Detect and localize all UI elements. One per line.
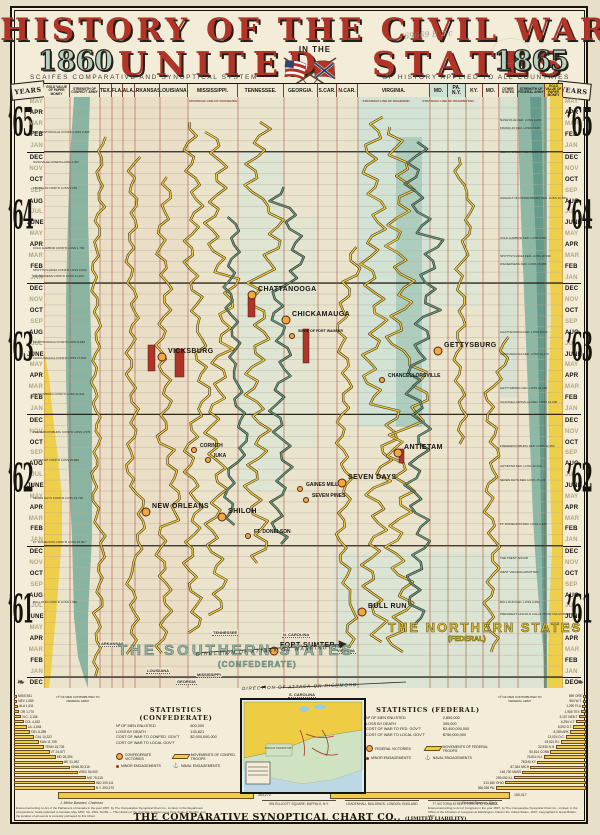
stair-label: OR 1,770 [20,710,34,714]
confederate-annotation: FT. DONELSON CONF’D LOSS 15,067 [33,540,86,544]
battle-label: SEVEN PINES [312,493,345,499]
year-block: ’64 [569,152,590,283]
legend-item: FEDERAL VICTORIES [366,745,421,752]
stair-bar [583,695,586,699]
flourish-icon: ❧ [17,678,24,688]
statistic-value: $750,000,000 [443,733,466,739]
chairman-signature: J. Mellor Barward, Chairman [60,801,103,805]
federal-annotation: BULL RUN FED. LOSS 2,952 [500,600,540,604]
month-label: JUL [27,603,45,609]
stair-bar [14,750,50,754]
secession-label: S. CAROLINA [288,692,316,698]
stair-label: IOWA 50,316 [71,765,90,769]
vic-icon [366,745,373,752]
vic-icon [116,753,123,760]
column-header: ARKANSAS. [135,84,160,98]
stair-bar [537,761,586,765]
statistic-line: COST OF WAR TO LOCAL GOV’T [116,741,236,747]
stair-bar [14,771,78,775]
stair-bar [573,725,586,729]
stair-bar [14,776,86,780]
stair-row: 32,930 N.H. [538,745,586,750]
subtitle: SCAIFES COMPARATIVE AND SYNOPTICAL SYSTE… [30,74,570,81]
battle-label: IUKA [214,453,226,459]
stair-row: 50,514 CONN [529,750,586,755]
stair-row: 899 ORE [569,694,586,699]
stair-label: COL 4,432 [25,720,40,724]
stair-label: 3,157 NEB.T [559,715,577,719]
stair-row: 146,730 MASS [500,770,586,775]
stair-bar [14,715,21,719]
stair-bar [570,730,586,734]
confederate-annotation: SPOTTSYLVANIA CONF’D LOSS 9,000 [33,268,86,272]
stair-label: WISC 54,050 [79,770,98,774]
month-label: MAY [27,231,45,237]
legend-label: FEDERAL VICTORIES [375,747,411,751]
column-header: LOUISIANA. [160,84,188,98]
stair-bar [582,705,586,709]
legend-label: NAVAL ENGAGEMENTS [433,756,472,760]
stair-label: KAN 11,755 [40,740,57,744]
month-label: AUG [27,593,45,599]
stair-row: 3,157 NEB.T [559,714,586,719]
statistic-value: $2,000,000,000 [190,735,216,741]
southern-states-sublabel: (CONFEDERATE) [218,660,297,669]
federal-annotation: FT. DONELSON FED. LOSS 2,886 [500,522,547,526]
footer-bar-2-value: 150,317 [514,793,527,797]
stairs-right: 899 ORE964 W.T.1,290 FLA1,965 TEX3,157 N… [486,694,586,790]
column-header: STRENGTH OF FEDERAL ARMY [518,84,545,98]
stair-row: DEL 8,289 [14,730,114,735]
month-label: MAR [27,647,45,653]
stair-row: MO 75,315 [14,775,114,780]
stair-row: 4,294 U.T. [561,719,586,724]
column-header: MO. [483,84,499,98]
stair-label: N.C. 3,156 [22,715,37,719]
month-label: OCT [27,571,45,577]
legend-item: MINOR ENGAGEMENTS [116,764,169,768]
map-caption-box [246,762,270,784]
statistic-label: COST OF WAR TO LOCAL GOV’T [116,741,190,747]
month-block: DECNOVOCTSEPAUGJULJUNEMAYAPRMARFEBJAN [27,546,45,677]
month-label: MAR [27,253,45,259]
month-label: JAN [27,406,45,412]
stair-row: 76,814 N.J. [527,755,586,760]
year-block: ’65 [569,97,590,152]
stair-label: 366,326 PA. [478,786,495,790]
federal-annotation: ANTIETAM FED. LOSS 12,410 [500,464,541,468]
column-header: GOLD VALUE OF PAPER MONEY [44,84,70,98]
stair-label: NEV 1,080 [18,699,33,703]
stair-bar [496,786,586,790]
battle-label: GETTYSBURG [444,342,497,349]
legend-label: CONFEDERATE VICTORIES [125,753,169,761]
month-label: NOV [27,560,45,566]
stair-bar [14,781,95,785]
confederate-statistics-lines: Nº OF MEN ENLISTED600,000LOSS BY DEATH13… [116,724,236,747]
month-label: OCT [27,440,45,446]
federal-statistics: STATISTICS (FEDERAL) Nº OF MEN ENLISTED2… [366,706,490,761]
stair-label: MD 26,394 [57,755,73,759]
battle-label: CHANCELLORSVILLE [388,373,441,379]
month-label: JUL [27,209,45,215]
stair-row: 366,326 PA. [478,785,586,790]
column-header: KY. [466,84,483,98]
month-label: APR [27,505,45,511]
stair-bar [14,730,30,734]
stair-label: 8,289 ARK [554,730,569,734]
confederate-statistics-title: STATISTICS (CONFEDERATE) [116,706,236,722]
stair-bar [579,715,586,719]
legend-label: MOVEMENTS OF CONFED. TROOPS [191,753,236,761]
month-block: DECNOVOCTSEPAUGJULJUNEMAYAPRMARFEBJAN [27,152,45,283]
month-label: JUNE [27,614,45,620]
legend-label: NAVAL ENGAGEMENTS [181,764,220,768]
month-label: FEB [27,658,45,664]
stair-row: MD 26,394 [14,755,114,760]
stair-bar [14,745,44,749]
confederate-annotation: FREDERICKSBURG CONF’D LOSS 4,576 [33,430,90,434]
stair-label: MO 75,315 [87,776,103,780]
subtitle-right: OF HISTORY APPLIED TO ALL COUNTRIES [382,74,570,81]
stair-row: 13,024 D.C. [548,735,586,740]
secession-label: N. CAROLINA [282,632,310,638]
legend-item: MOVEMENTS OF FEDERAL TROOPS [425,745,490,753]
stair-label: 964 W.T. [569,699,581,703]
stair-label: 13,024 D.C. [548,735,565,739]
stair-label: VT 24,577 [51,750,66,754]
stair-row: 313,180 OHIO [483,780,586,785]
map-indian-territory-label: INDIAN TERRITORY [265,746,293,750]
column-header: FLA. [112,84,123,98]
month-label: MAY [27,362,45,368]
battle-label: NEW ORLEANS [152,503,209,510]
confederate-legend: CONFEDERATE VICTORIESMOVEMENTS OF CONFED… [116,753,236,769]
month-label: JUNE [27,220,45,226]
month-label: APR [27,636,45,642]
month-label: MAY [27,99,45,105]
stair-row: VT 24,577 [14,750,114,755]
legend-item: MOVEMENTS OF CONFED. TROOPS [173,753,236,761]
federal-annotation: CHICKAMAUGA FED. LOSS 16,179 [500,352,549,356]
stair-bar [522,771,586,775]
year-left: 1860 [38,46,113,77]
battle-label: BULL RUN [368,603,407,610]
month-label: AUG [27,330,45,336]
month-label: OCT [27,177,45,183]
year-numeral: ’65 [567,101,592,147]
stair-row: IOWA 50,316 [14,765,114,770]
column-header: GEORGIA. [284,84,318,98]
year-numeral: ’62 [567,457,592,503]
stair-label: 1,965 TEX [565,710,580,714]
subtitle-left: SCAIFES COMPARATIVE AND SYNOPTICAL SYSTE… [30,74,258,81]
stair-bar [14,740,39,744]
federal-annotation: CHATTANOOGA FED. LOSS 5,616 [500,330,547,334]
us-map-inset: INDIAN TERRITORY [240,698,366,794]
stair-row: WISC 54,050 [14,770,114,775]
federal-annotation: WEST VIRGINIA ADMITTED [500,570,538,574]
year-block: ’62 [569,414,590,545]
northern-states-label: THE NORTHERN STATES [388,620,582,635]
federal-annotation: SEVEN DAYS FED. LOSS 15,249 [500,478,545,482]
company-address: 691 ELLICOTT SQUARE, BUFFALO, N.Y. [262,800,336,806]
month-label: APR [27,373,45,379]
stair-bar [14,700,17,704]
federal-annotation: FREDERICKSBURG FED. LOSS 12,353 [500,444,555,448]
stair-row: 19,521 R.I. [545,740,586,745]
stair-label: LA. 4,654 [28,725,42,729]
month-label: JUNE [27,483,45,489]
column-header: MD. [430,84,448,98]
stair-row: 1,290 FLA [566,704,586,709]
federal-annotation: THE TRENT AFFAIR [500,556,528,560]
stair-row: TENN 15,739 [14,745,114,750]
federal-annotation: ASSAULT ON PETERSBURG FED. LOSS 10,586 [500,196,567,200]
stair-row: LA. 4,654 [14,724,114,729]
secession-label: MISSISSIPPI [196,672,222,678]
stair-bar [556,745,586,749]
stair-label: N.Y. 393,270 [96,786,114,790]
stair-row: KAN 11,755 [14,740,114,745]
confederate-annotation: CHATTANOOGA CONF’D LOSS 8,684 [33,340,85,344]
federal-annotation: NASHVILLE FED. LOSS 3,057 [500,118,541,122]
year-numeral: ’63 [567,326,592,372]
month-block: DEC [27,677,45,688]
stair-label: ALA 1,611 [19,704,33,708]
statistic-line: COST OF WAR TO LOCAL GOV’T$750,000,000 [366,733,490,739]
stair-row: 1,965 TEX [565,709,586,714]
stair-bar [14,695,17,699]
federal-annotation: CEDAR CREEK FED. LOSS 5,995 [500,150,547,154]
stair-label: 313,180 OHIO [483,781,504,785]
company-name-text: THE COMPARATIVE SYNOPTICAL CHART CO., [134,812,402,823]
month-label: DEC [27,418,45,424]
federal-annotation: GETTYSBURG FED. LOSS 23,186 [500,386,547,390]
stair-bar [530,766,586,770]
battle-label: SIEGE OF FORT WAGNER [298,329,343,333]
confederate-annotation: GETTYSBURG CONF’D LOSS 31,621 [33,392,85,396]
stair-bar [14,786,95,790]
secession-label: TENNESSEE [212,630,238,636]
stair-label: 4,294 U.T. [561,720,576,724]
battle-label: CORINTH [200,443,223,449]
battle-label: ANTIETAM [404,444,443,451]
month-block: DECNOVOCTSEPAUGJULJUNEMAYAPRMARFEBJAN [27,414,45,545]
confederate-statistics: STATISTICS (CONFEDERATE) Nº OF MEN ENLIS… [116,706,236,769]
stair-bar [14,766,70,770]
federal-annotation: COLD HARBOR FED. LOSS 9,457 [500,236,547,240]
column-header: PA. N.Y. [448,84,466,98]
confederate-annotation: COLD HARBOR CONF’D LOSS 1,700 [33,246,84,250]
civil-war-chart-page: HISTORY OF THE CIVIL WAR 1860 UNITED IN … [0,0,600,835]
month-label: DEC [27,286,45,292]
stair-row: 8,289 ARK [554,730,586,735]
secession-label: LOUISIANA [146,668,170,674]
library-stamp [492,38,530,64]
legend-label: MINOR ENGAGEMENTS [371,756,411,760]
stairs-left-title: Nº OF MEN CONTRIBUTED TO FEDERAL ARMY [52,696,104,703]
stair-bar [14,735,34,739]
company-address: 77 VICTORIA STREET, TORONTO, CANADA [428,800,502,806]
stair-bar [576,720,586,724]
stair-label: 146,730 MASS [500,770,521,774]
month-label: APR [27,110,45,116]
confederate-annotation: NASHVILLE CONF’D LOSS 4,462 [33,160,79,164]
stair-bar [581,710,586,714]
legend-item: ⚓NAVAL ENGAGEMENTS [173,764,236,769]
confederate-annotation: CHICKAMAUGA CONF’D LOSS 17,804 [33,356,86,360]
statistic-label: COST OF WAR TO LOCAL GOV’T [366,733,443,739]
stair-label: TENN 15,739 [45,745,64,749]
strategic-line-label: STRATEGIC LINE OF RICHMOND [356,99,416,103]
legend-item: CONFEDERATE VICTORIES [116,753,169,761]
confederate-annotation: SEVEN DAYS CONF’D LOSS 19,739 [33,496,83,500]
company-name: THE COMPARATIVE SYNOPTICAL CHART CO., (L… [0,812,600,823]
month-label: AUG [27,461,45,467]
stair-label: 1,290 FLA [566,704,581,708]
stair-row: OR 1,770 [14,709,114,714]
main-chart-canvas [44,97,563,688]
stair-bar [505,781,586,785]
stair-bar [550,750,586,754]
month-label: MAY [27,625,45,631]
stairs-right-title: Nº OF MEN CONTRIBUTED TO FEDERAL ARMY [494,696,546,703]
stair-label: 5,092 D.T. [558,725,573,729]
confederate-annotation: BULL RUN CONF’D LOSS 1,982 [33,600,77,604]
stair-label: IND 109,111 [96,781,113,785]
federal-annotation: PRESIDENT LINCOLN CALLS 75,000 VOLUNTEER… [500,612,572,616]
year-block: ❧ [569,677,590,688]
month-label: MAR [27,516,45,522]
confederate-annotation: FRANKLIN CONF’D LOSS 6,252 [33,186,77,190]
confederate-annotation: WILDERNESS CONF’D LOSS 11,400 [33,274,84,278]
federal-annotation: WILDERNESS FED. LOSS 15,384 [500,262,546,266]
federal-annotation: SPOTTSYLVANIA FED. LOSS 18,399 [500,254,551,258]
month-label: JUL [27,472,45,478]
battle-label: VICKSBURG [168,348,214,355]
min-icon [366,757,369,760]
stair-label: 899 ORE [569,694,582,698]
company-address: LEADENHALL BUILDINGS, LONDON, ENGLAND [345,800,419,806]
month-label: SEP [27,582,45,588]
stair-row: N.Y. 393,270 [14,785,114,790]
federal-annotation: FRANKLIN FED. LOSS 2,326 [500,126,540,130]
year-block: ’63 [569,283,590,414]
column-header: N.CAR. [337,84,358,98]
company-addresses: 691 ELLICOTT SQUARE, BUFFALO, N.Y.LEADEN… [262,800,502,806]
stair-label: 259,092 ILL [496,776,513,780]
footer-bar-1 [58,792,254,799]
stair-bar [561,740,586,744]
stair-bar [14,725,27,729]
month-label: AUG [27,199,45,205]
confederate-annotation: $60. BENTONVILLE CONF’D LOSS 2,825 [33,130,90,134]
battle-label: GAINES MILL [306,482,338,488]
battle-label: CHATTANOOGA [258,286,317,293]
stair-bar [14,761,63,765]
month-label: NOV [27,166,45,172]
column-header: GOLD VALUE OF PAPER MONEY [545,84,563,98]
secession-label: GEORGIA [176,679,197,685]
stair-bar [583,700,586,704]
company-name-small: (LIMITED LIABILITY) [405,816,467,822]
month-label: DEC [27,549,45,555]
stair-bar [514,776,586,780]
confederate-annotation: ANTIETAM CONF’D LOSS 25,899 [33,458,79,462]
column-header: OTHER STATES [499,84,518,98]
column-header: VIRGINIA. [358,84,430,98]
stair-row: N.C. 3,156 [14,714,114,719]
column-header: S.CAR. [318,84,337,98]
strategic-line-label: STRATEGIC LINE OF WASHINGTON [418,99,478,103]
stair-label: 87,364 MICH [510,765,529,769]
stair-label: CAL 10,322 [35,735,52,739]
battle-label: SHILOH [228,508,257,515]
federal-statistics-title: STATISTICS (FEDERAL) [366,706,490,714]
federal-annotation: CHANCELLORSVILLE FED. LOSS 16,030 [500,400,557,404]
month-label: MAR [27,384,45,390]
stair-row: 78,540 KY. [521,760,586,765]
flourish-icon: ❧ [576,678,583,688]
tr-icon [423,746,442,751]
stair-label: 32,930 N.H. [538,745,555,749]
legend-label: MOVEMENTS OF FEDERAL TROOPS [443,745,490,753]
month-label: SEP [27,450,45,456]
stairs-left: MISS 651NEV 1,080ALA 1,611OR 1,770N.C. 3… [14,694,114,790]
stair-row: 964 W.T. [569,699,586,704]
nav-icon: ⚓ [173,764,179,769]
legend-item: MINOR ENGAGEMENTS [366,756,421,760]
stair-row: 87,364 MICH [510,765,586,770]
column-header: TEX. [100,84,112,98]
stair-row: COL 4,432 [14,719,114,724]
legend-label: MINOR ENGAGEMENTS [121,764,161,768]
stair-row: ALA 1,611 [14,704,114,709]
stair-row: IND 109,111 [14,780,114,785]
stair-label: ME 31,092 [64,760,79,764]
stair-label: 19,521 R.I. [545,740,561,744]
month-label: MAR [27,121,45,127]
stair-label: 78,540 KY. [521,760,536,764]
stair-bar [566,735,586,739]
month-label: JAN [27,669,45,675]
year-numeral: ’64 [567,194,592,240]
legend-item: ⚓NAVAL ENGAGEMENTS [425,756,490,761]
month-label: NOV [27,297,45,303]
column-header: TENNESSEE. [238,84,284,98]
stair-bar [14,705,18,709]
northern-states-sublabel: (FEDERAL) [448,636,486,643]
tr-icon [171,754,190,759]
stair-bar [14,710,19,714]
month-block: MAYAPRMARFEBJAN [27,97,45,152]
month-label: FEB [27,526,45,532]
stair-label: 76,814 N.J. [527,755,543,759]
federal-statistics-lines: Nº OF MEN ENLISTED2,850,000LOSS BY DEATH… [366,716,490,739]
stair-bar [544,755,586,759]
stair-row: 259,092 ILL [496,775,586,780]
stair-bar [14,755,56,759]
month-label: SEP [27,319,45,325]
stair-label: DEL 8,289 [31,730,46,734]
stair-label: MISS 651 [18,694,32,698]
battle-label: FT. DONELSON [254,529,291,535]
stair-bar [14,720,24,724]
column-header: STRENGTH OF CONFED’T ARMY [70,84,100,98]
strategic-line-label: STRATEGIC LINE OF VICKSBURG [183,99,243,103]
stair-row: ME 31,092 [14,760,114,765]
